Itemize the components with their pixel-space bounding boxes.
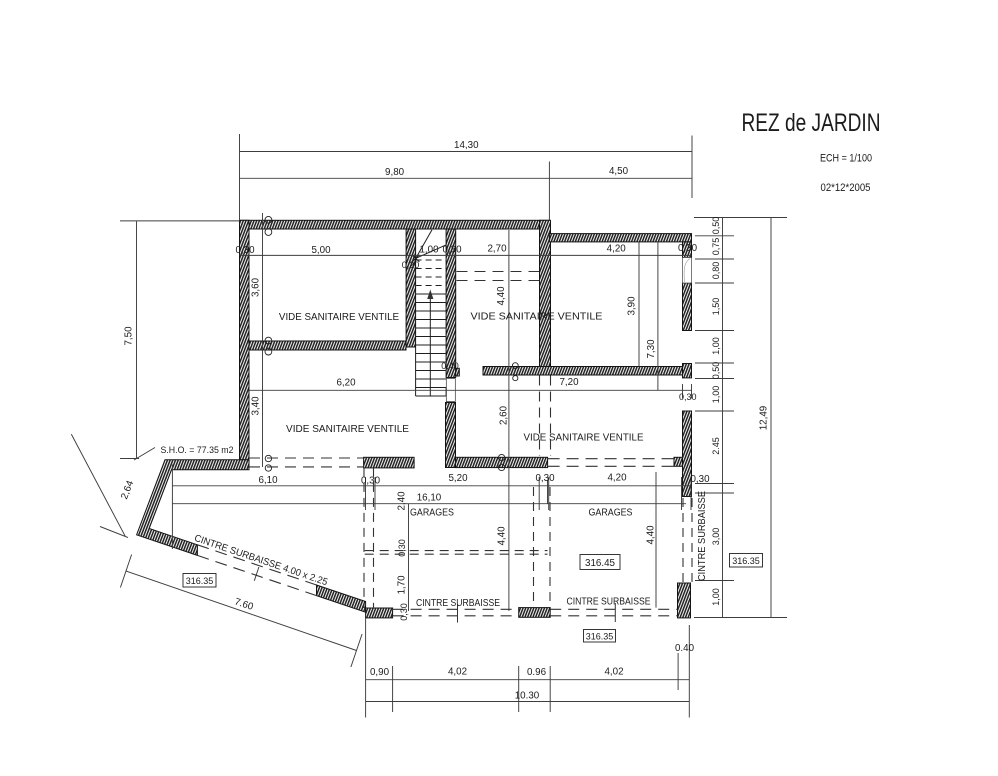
svg-text:0,75: 0,75	[711, 238, 721, 256]
svg-text:0,30: 0,30	[361, 475, 381, 486]
svg-text:VIDE SANITAIRE VENTILE: VIDE SANITAIRE VENTILE	[279, 312, 400, 323]
svg-text:4,02: 4,02	[604, 667, 623, 678]
svg-text:316.35: 316.35	[186, 576, 214, 586]
svg-text:4,02: 4,02	[448, 667, 467, 678]
svg-text:GARAGES: GARAGES	[589, 508, 633, 519]
svg-text:6,10: 6,10	[258, 475, 278, 486]
svg-text:1,00: 1,00	[419, 244, 439, 255]
svg-text:5,20: 5,20	[448, 473, 468, 484]
svg-text:14,30: 14,30	[454, 140, 479, 151]
svg-text:0,40: 0,40	[441, 361, 459, 371]
svg-text:02*12*2005: 02*12*2005	[821, 182, 871, 194]
svg-text:0,30: 0,30	[679, 392, 697, 402]
svg-text:0,30: 0,30	[399, 603, 409, 621]
svg-text:0,30: 0,30	[442, 244, 462, 255]
svg-text:3,40: 3,40	[251, 396, 262, 416]
svg-text:1,50: 1,50	[711, 298, 721, 316]
svg-text:4,40: 4,40	[496, 286, 507, 306]
svg-text:12,49: 12,49	[759, 406, 770, 431]
svg-text:1,00: 1,00	[711, 337, 721, 355]
svg-text:4,20: 4,20	[607, 473, 627, 484]
svg-text:0,30: 0,30	[397, 539, 407, 557]
svg-text:2.45: 2.45	[711, 437, 721, 455]
svg-text:7,20: 7,20	[559, 377, 579, 388]
svg-text:0.40: 0.40	[675, 643, 695, 654]
svg-text:3,60: 3,60	[251, 277, 262, 297]
svg-text:CINTRE SURBAISSE: CINTRE SURBAISSE	[697, 491, 708, 581]
svg-text:4,40: 4,40	[497, 526, 508, 546]
svg-text:0,30: 0,30	[535, 473, 555, 484]
svg-text:7,50: 7,50	[124, 326, 135, 346]
svg-text:REZ de JARDIN: REZ de JARDIN	[742, 109, 881, 137]
svg-text:316.45: 316.45	[585, 558, 616, 569]
svg-text:3,00: 3,00	[711, 528, 721, 546]
svg-text:16,10: 16,10	[417, 493, 442, 504]
svg-text:CINTRE SURBAISSE: CINTRE SURBAISSE	[416, 598, 500, 609]
svg-text:VIDE SANITAIRE VENTILE: VIDE SANITAIRE VENTILE	[524, 432, 644, 443]
svg-text:2,70: 2,70	[487, 243, 507, 254]
svg-text:0,30: 0,30	[690, 474, 710, 485]
svg-text:3,90: 3,90	[627, 296, 638, 316]
svg-text:0,90: 0,90	[370, 667, 390, 678]
svg-text:4,40: 4,40	[646, 525, 657, 545]
svg-text:S.H.O. = 77.35 m2: S.H.O. = 77.35 m2	[161, 445, 234, 455]
svg-text:1,00: 1,00	[711, 588, 721, 606]
svg-text:VIDE SANITAIRE VENTILE: VIDE SANITAIRE VENTILE	[471, 312, 604, 323]
svg-text:4,50: 4,50	[609, 166, 629, 177]
svg-text:0.96: 0.96	[527, 667, 547, 678]
svg-text:10.30: 10.30	[515, 691, 540, 702]
svg-text:0,30: 0,30	[235, 245, 255, 256]
svg-text:4,20: 4,20	[607, 244, 627, 255]
svg-text:0,30: 0,30	[678, 243, 698, 254]
svg-text:5,00: 5,00	[311, 245, 331, 256]
svg-text:0,50: 0,50	[711, 217, 721, 235]
svg-text:0,80: 0,80	[711, 262, 721, 280]
svg-text:ECH = 1/100: ECH = 1/100	[820, 153, 872, 165]
svg-text:2,40: 2,40	[397, 491, 408, 511]
svg-text:GARAGES: GARAGES	[410, 508, 454, 519]
svg-text:7,30: 7,30	[646, 339, 657, 359]
svg-text:CINTRE SURBAISSE: CINTRE SURBAISSE	[567, 597, 651, 608]
svg-text:9,80: 9,80	[385, 167, 405, 178]
svg-text:0,20: 0,20	[402, 260, 420, 270]
svg-text:316.35: 316.35	[732, 556, 760, 566]
svg-text:6,20: 6,20	[336, 378, 356, 389]
svg-text:1,70: 1,70	[397, 575, 408, 595]
svg-text:1,00: 1,00	[711, 386, 721, 404]
svg-text:VIDE SANITAIRE VENTILE: VIDE SANITAIRE VENTILE	[286, 424, 409, 435]
svg-text:2,60: 2,60	[499, 405, 510, 425]
svg-text:316.35: 316.35	[586, 632, 614, 642]
svg-text:0,50: 0,50	[711, 362, 721, 380]
